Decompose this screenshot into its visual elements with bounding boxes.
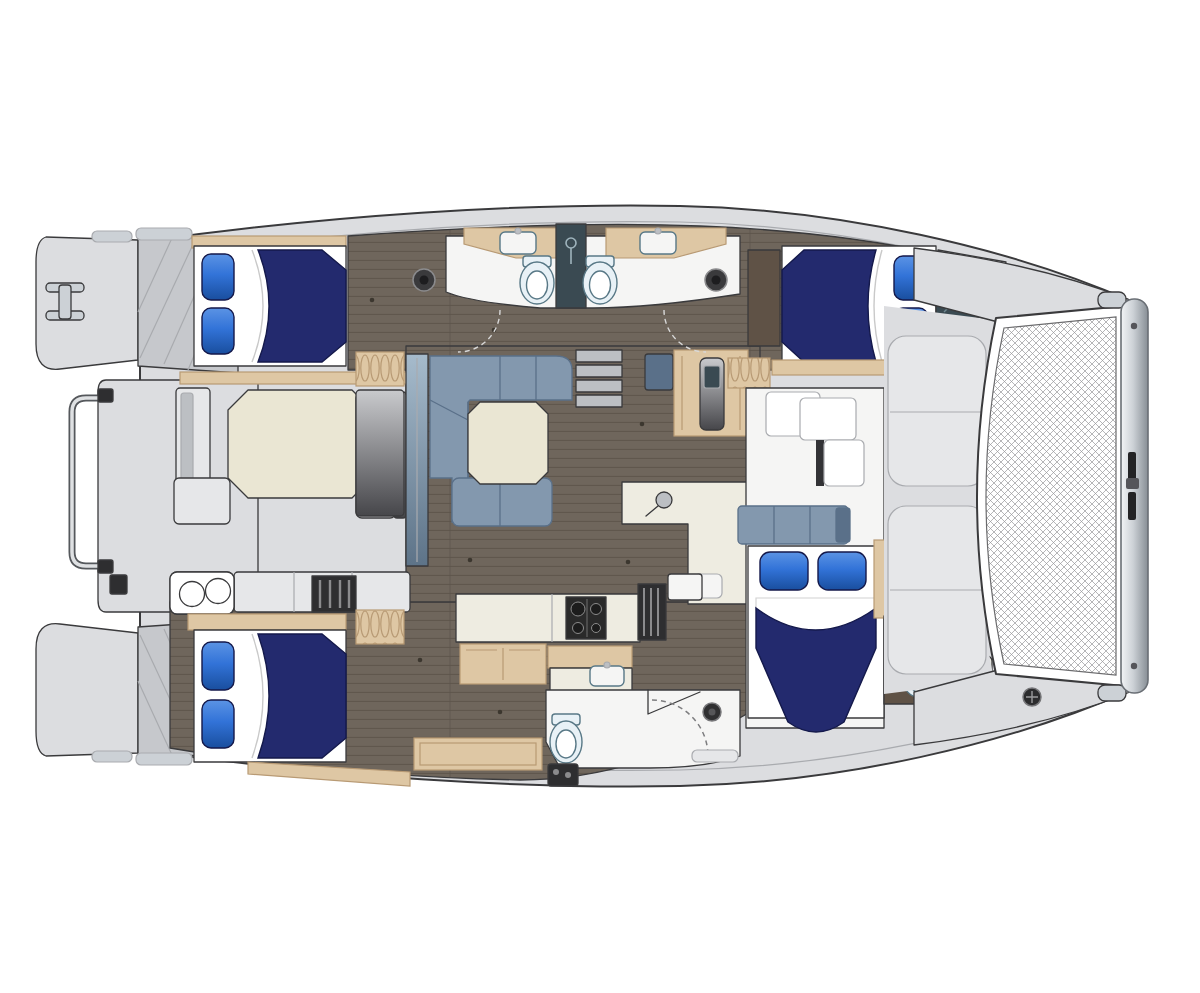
hanging-locker: [356, 610, 404, 644]
cockpit-seat-lower-left: [174, 478, 230, 524]
nav-screen: [704, 366, 720, 388]
starboard-forward-cabin: [738, 388, 888, 732]
pillow: [202, 308, 234, 354]
step-locker: [312, 576, 356, 612]
toilet-icon: [550, 714, 582, 763]
hanging-locker: [728, 358, 770, 388]
trampoline: [977, 306, 1124, 686]
windlass-icon: [1023, 688, 1041, 706]
pillow: [818, 552, 866, 590]
stern-trim-bar: [92, 231, 132, 242]
trampoline-net: [986, 317, 1116, 675]
duvet: [782, 250, 876, 362]
salon-cabinet: [645, 354, 673, 390]
starboard-companionway-steps: [638, 584, 666, 640]
locker: [824, 440, 864, 486]
swim-platform: [36, 237, 138, 369]
pillow: [760, 552, 808, 590]
catamaran-floor-plan: [0, 0, 1200, 993]
salon-table: [468, 402, 548, 484]
duvet: [258, 634, 346, 758]
vanity-unit: [748, 250, 780, 346]
pillow: [202, 642, 234, 690]
cabin-shelf: [188, 614, 346, 630]
locker-gap: [816, 440, 824, 486]
sink-icon: [640, 228, 676, 254]
pillow: [202, 700, 234, 748]
shower-shelf: [692, 750, 738, 762]
pillow: [202, 254, 234, 300]
bow-roller: [1098, 685, 1126, 701]
deck-fitting-icon: [413, 269, 435, 291]
sink-icon: [590, 662, 624, 686]
drain-icon: [703, 703, 721, 721]
sink-icon: [500, 228, 536, 254]
toilet-icon: [583, 256, 617, 304]
galley-wood-counter: [548, 646, 632, 668]
cockpit-aft-cabinet: [356, 390, 404, 516]
galley-counter: [456, 594, 640, 642]
stove-icon: [566, 597, 606, 639]
hanging-locker: [356, 352, 404, 386]
locker: [800, 398, 856, 440]
cabin-settee: [738, 506, 850, 544]
stern-trim-bar: [136, 228, 192, 240]
cockpit-table: [228, 390, 372, 498]
beam-bolt: [1131, 663, 1137, 669]
floor-plan-canvas: [0, 0, 1200, 993]
shore-power-box-icon: [110, 575, 127, 594]
shower-column: [556, 224, 586, 308]
duvet: [258, 250, 346, 362]
salon-sofa-seat-aft: [452, 478, 552, 526]
water-heater: [548, 764, 578, 786]
rail-mount: [98, 389, 113, 402]
beam-bolt: [1131, 323, 1137, 329]
wetbar-icon: [170, 572, 234, 614]
rail-mount: [98, 560, 113, 573]
deck-fitting-icon: [705, 269, 727, 291]
toilet-icon: [520, 256, 554, 304]
foredeck-lounge-pad: [888, 336, 986, 486]
galley-locker: [668, 574, 702, 600]
